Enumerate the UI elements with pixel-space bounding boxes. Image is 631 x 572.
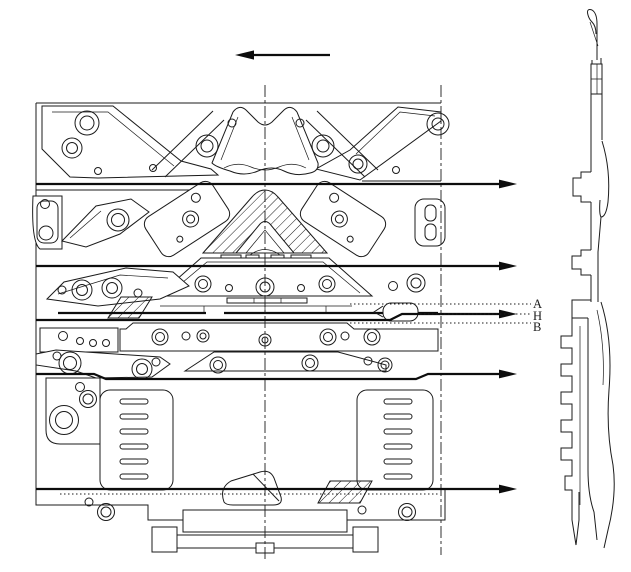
top-left-guard-cam	[42, 106, 218, 178]
carriage-direction-arrow	[235, 50, 330, 59]
needle-arrowhead-2	[499, 262, 517, 271]
left-arrowhead-icon	[235, 50, 254, 59]
reference-lines-ahb: A H B	[350, 297, 542, 334]
needle-arrowhead-4	[499, 370, 517, 379]
technical-drawing-page: A H B	[0, 0, 631, 572]
label-b: B	[533, 320, 541, 334]
right-oval-hole-piece	[415, 199, 445, 246]
needle-arrowhead-1	[499, 180, 517, 189]
side-profile-view	[561, 10, 614, 548]
top-right-guard-cam	[316, 107, 449, 180]
lower-cam-bar	[40, 323, 438, 352]
right-slot-block	[357, 390, 433, 490]
hatched-insert-bottom	[318, 481, 372, 503]
left-bracket-cam	[33, 196, 149, 249]
left-band-cam	[47, 268, 189, 318]
needle-arrowhead-5	[499, 485, 517, 494]
knitting-cam-system-drawing: A H B	[0, 0, 631, 572]
left-slot-block	[100, 390, 173, 490]
lower-left-corner	[46, 378, 100, 444]
